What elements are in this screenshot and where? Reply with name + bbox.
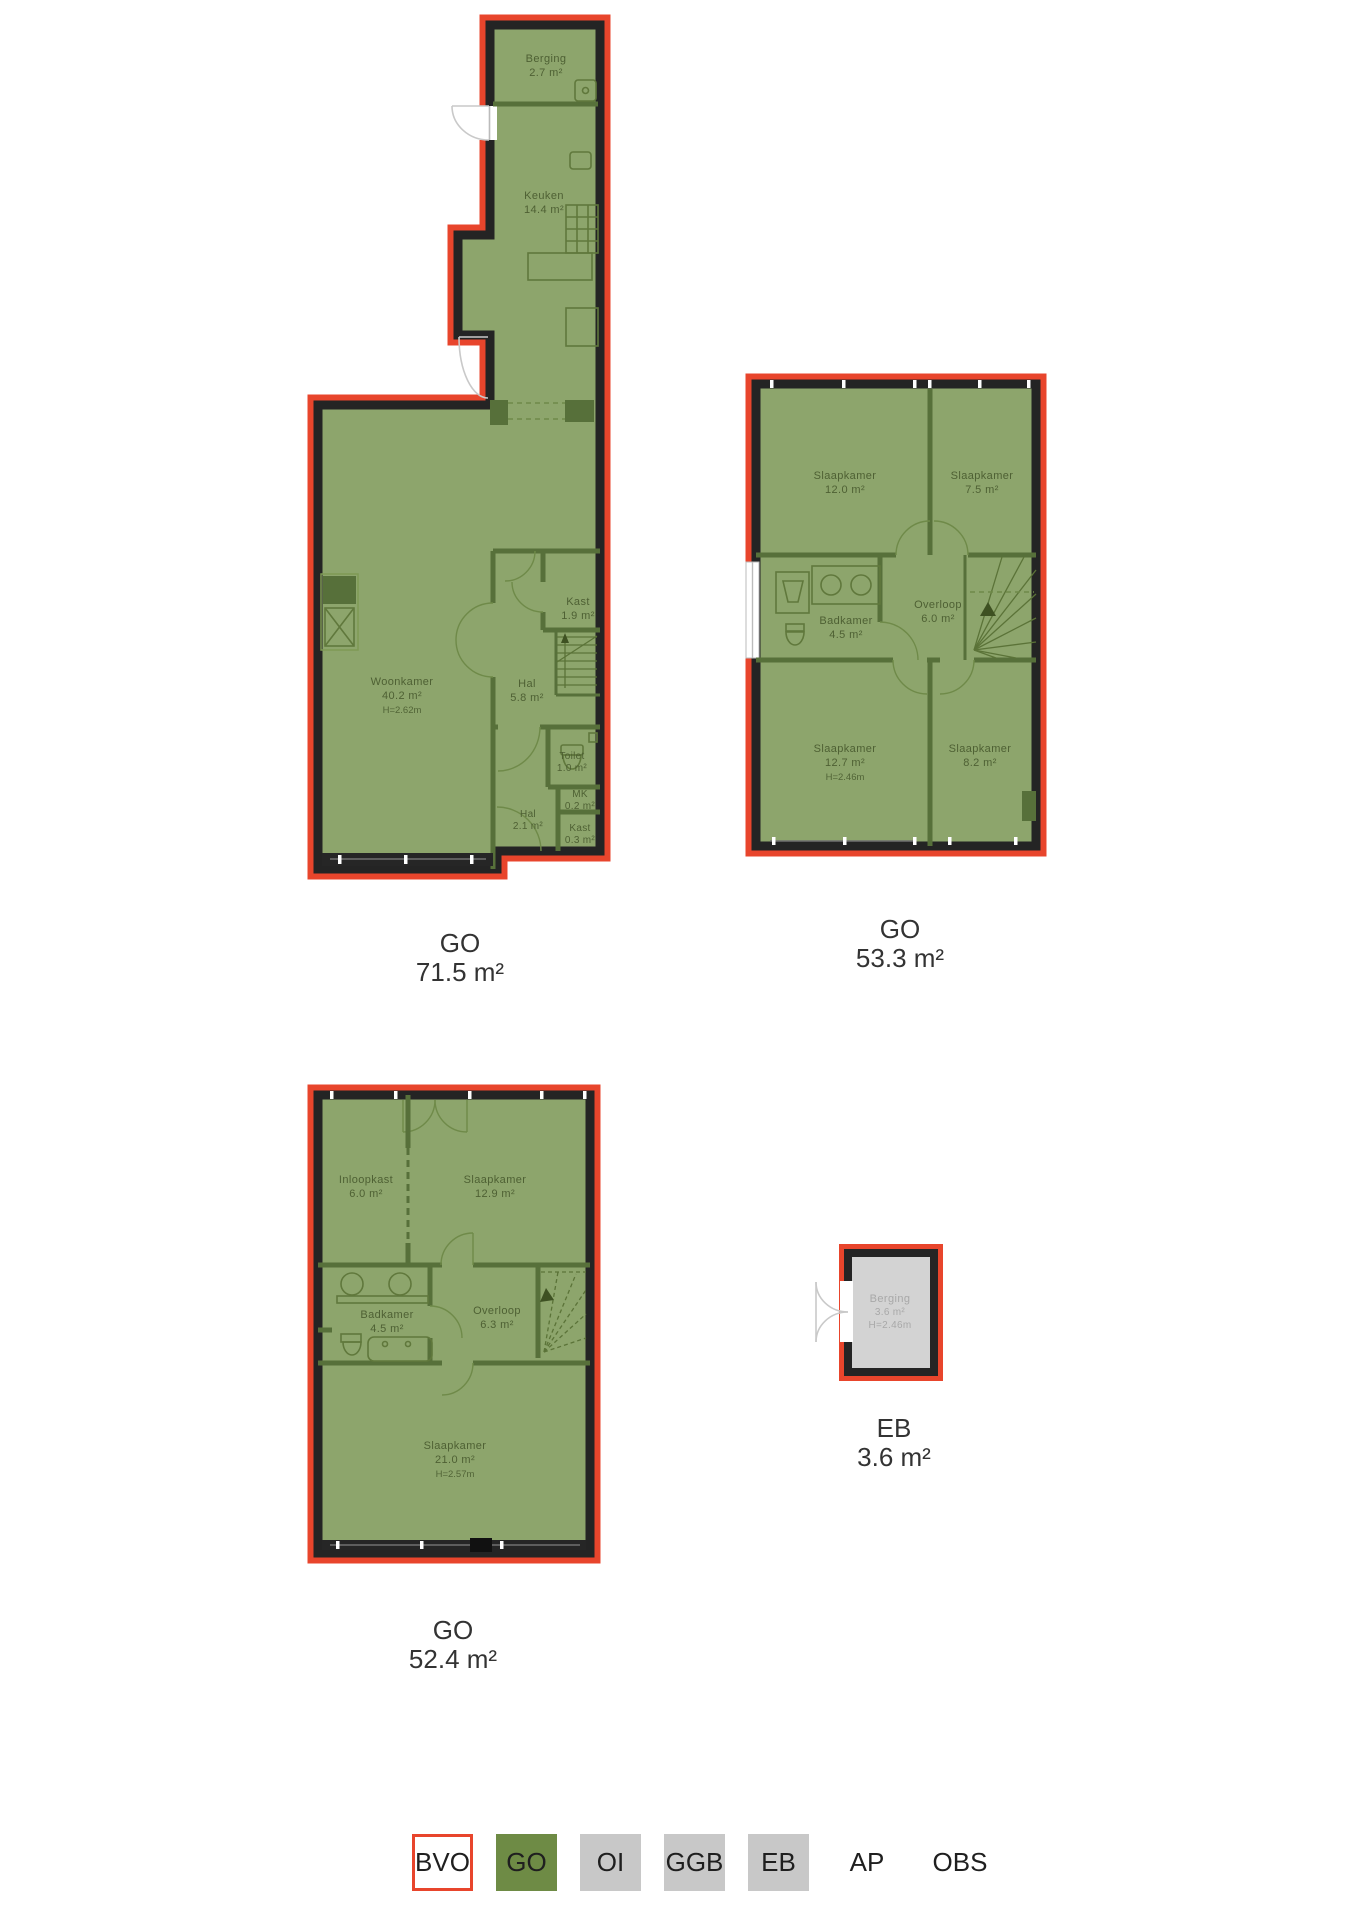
room-label: Kast: [569, 823, 590, 834]
room-label: Overloop: [473, 1305, 521, 1317]
window-band: [322, 1538, 586, 1552]
window-band: [322, 853, 493, 866]
floor-plan-page: Berging 2.7 m² Keuken 14.4 m² Woonkamer …: [0, 0, 1358, 1920]
legend-item-bvo: BVO: [412, 1834, 473, 1891]
plan-total-area: 3.6 m²: [784, 1443, 1004, 1472]
room-area: 12.9 m²: [475, 1188, 515, 1200]
room-height: H=2.57m: [436, 1469, 475, 1480]
legend-item-obs: OBS: [925, 1834, 995, 1891]
plan-total-area: 53.3 m²: [790, 944, 1010, 973]
room-area: 0.3 m²: [565, 835, 596, 846]
room-label: Kast: [566, 596, 590, 608]
room-label: Berging: [526, 53, 567, 65]
second-floor-plan: Inloopkast 6.0 m² Slaapkamer 12.9 m² Bad…: [318, 1091, 590, 1553]
room-area: 6.0 m²: [921, 613, 955, 625]
legend-item-oi: OI: [580, 1834, 641, 1891]
double-door-arcs: [816, 1281, 853, 1342]
room-label: Hal: [520, 809, 536, 820]
room-label: Slaapkamer: [949, 743, 1012, 755]
room-area: 2.1 m²: [513, 821, 544, 832]
room-area: 21.0 m²: [435, 1454, 475, 1466]
plan-outline-wall: [318, 25, 600, 869]
room-area: 1.9 m²: [561, 610, 595, 622]
room-area: 1.0 m²: [557, 763, 588, 774]
room-label: Overloop: [914, 599, 962, 611]
legend-item-eb: EB: [748, 1834, 809, 1891]
window-strip: [746, 562, 759, 658]
room-label: Woonkamer: [371, 676, 434, 688]
room-label: Slaapkamer: [464, 1174, 527, 1186]
wall-notch: [1022, 791, 1036, 821]
room-area: 4.5 m²: [829, 629, 863, 641]
room-area: 7.5 m²: [965, 484, 999, 496]
first-floor-plan: Slaapkamer 12.0 m² Slaapkamer 7.5 m² Bad…: [746, 380, 1036, 846]
room-area: 0.2 m²: [565, 801, 596, 812]
room-label: Inloopkast: [339, 1174, 393, 1186]
floor-plans-canvas: Berging 2.7 m² Keuken 14.4 m² Woonkamer …: [0, 0, 1358, 1920]
room-area: 6.0 m²: [349, 1188, 383, 1200]
legend-item-ap: AP: [832, 1834, 902, 1891]
room-height: H=2.46m: [869, 1320, 912, 1331]
room-label: Badkamer: [360, 1309, 413, 1321]
room-label: Slaapkamer: [814, 470, 877, 482]
room-area: 40.2 m²: [382, 690, 422, 702]
room-label: Toilet: [559, 751, 584, 762]
room-height: H=2.46m: [826, 772, 865, 783]
plan-code: GO: [790, 915, 1010, 944]
room-area: 14.4 m²: [524, 204, 564, 216]
plan-caption-ground-floor: GO 71.5 m²: [350, 929, 570, 987]
room-height: H=2.62m: [383, 705, 422, 716]
room-label: Berging: [870, 1293, 911, 1305]
legend-item-go: GO: [496, 1834, 557, 1891]
plan-code: GO: [343, 1616, 563, 1645]
room-label: Slaapkamer: [951, 470, 1014, 482]
external-storage-plan: Berging 3.6 m² H=2.46m: [816, 1253, 934, 1372]
legend-item-ggb: GGB: [664, 1834, 725, 1891]
plan-code: EB: [784, 1414, 1004, 1443]
back-door: [452, 106, 497, 140]
room-area: 12.7 m²: [825, 757, 865, 769]
room-area: 12.0 m²: [825, 484, 865, 496]
plan-code: GO: [350, 929, 570, 958]
room-area: 2.7 m²: [529, 67, 563, 79]
room-area: 6.3 m²: [480, 1319, 514, 1331]
plan-caption-external-storage: EB 3.6 m²: [784, 1414, 1004, 1472]
room-label: MK: [572, 789, 588, 800]
room-label: Slaapkamer: [424, 1440, 487, 1452]
room-label: Badkamer: [819, 615, 872, 627]
room-label: Keuken: [524, 190, 564, 202]
plan-total-area: 52.4 m²: [343, 1645, 563, 1674]
room-area: 3.6 m²: [875, 1307, 906, 1318]
room-area: 5.8 m²: [510, 692, 544, 704]
room-label: Slaapkamer: [814, 743, 877, 755]
room-area: 4.5 m²: [370, 1323, 404, 1335]
plan-caption-first-floor: GO 53.3 m²: [790, 915, 1010, 973]
ground-floor-plan: Berging 2.7 m² Keuken 14.4 m² Woonkamer …: [318, 25, 600, 869]
legend: BVO GO OI GGB EB AP OBS: [412, 1834, 995, 1891]
plan-total-area: 71.5 m²: [350, 958, 570, 987]
room-label: Hal: [518, 678, 536, 690]
plan-caption-second-floor: GO 52.4 m²: [343, 1616, 563, 1674]
room-area: 8.2 m²: [963, 757, 997, 769]
